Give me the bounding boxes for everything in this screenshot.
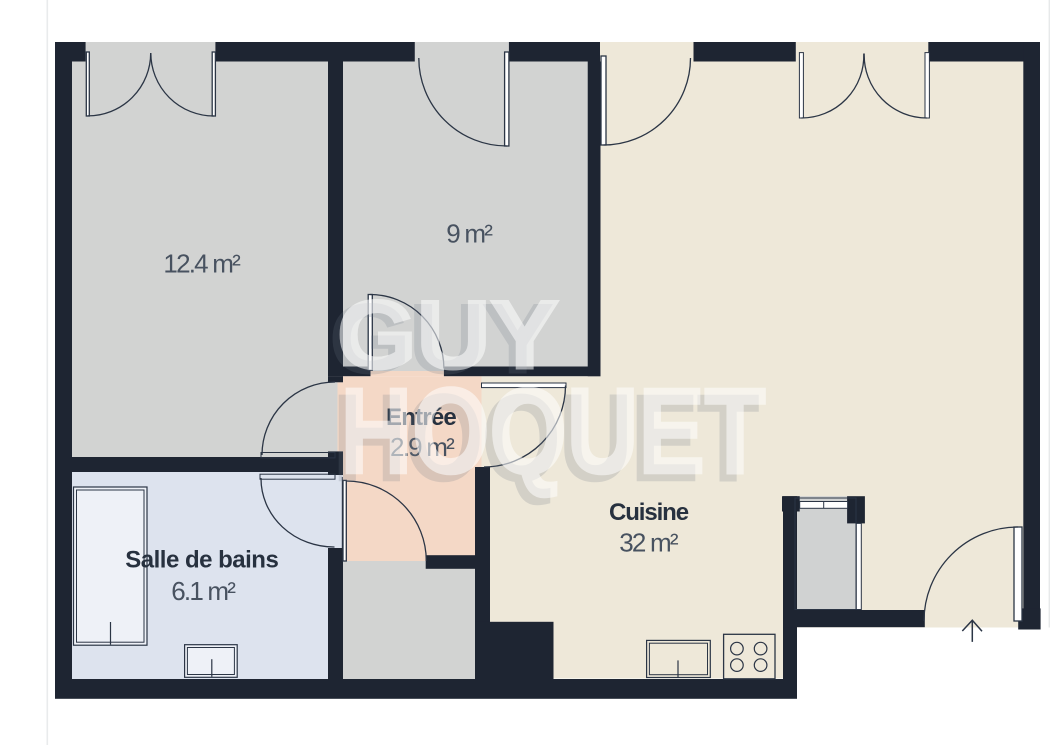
svg-text:12.4 m²: 12.4 m² [163,249,241,279]
svg-text:9 m²: 9 m² [446,219,493,249]
svg-text:Salle de bains: Salle de bains [125,547,278,574]
svg-text:HOQUET: HOQUET [341,364,766,498]
svg-text:32 m²: 32 m² [619,527,679,557]
svg-text:6.1 m²: 6.1 m² [171,576,236,606]
